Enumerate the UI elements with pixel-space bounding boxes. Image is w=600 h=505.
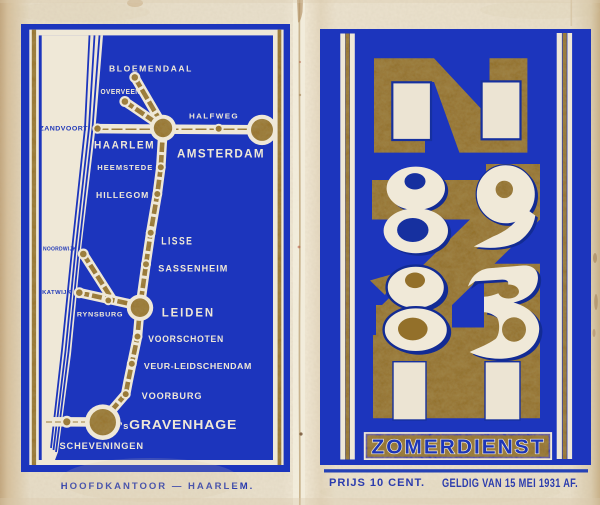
svg-text:ZANDVOORT: ZANDVOORT	[40, 127, 89, 133]
svg-text:ZOMERDIENST: ZOMERDIENST	[372, 436, 546, 458]
svg-text:LEIDEN: LEIDEN	[162, 306, 215, 320]
svg-text:VEUR-LEIDSCHENDAM: VEUR-LEIDSCHENDAM	[144, 362, 252, 371]
svg-text:HALFWEG: HALFWEG	[189, 112, 239, 121]
svg-text:AMSTERDAM: AMSTERDAM	[177, 147, 265, 161]
svg-text:VOORSCHOTEN: VOORSCHOTEN	[148, 334, 224, 344]
svg-text:’sGRAVENHAGE: ’sGRAVENHAGE	[120, 417, 237, 432]
svg-text:PRIJS 10 CENT.: PRIJS 10 CENT.	[329, 477, 425, 489]
svg-text:GELDIG VAN 15 MEI 1931 AF.: GELDIG VAN 15 MEI 1931 AF.	[442, 477, 578, 490]
svg-text:HILLEGOM: HILLEGOM	[96, 190, 149, 200]
svg-text:LISSE: LISSE	[161, 236, 193, 248]
svg-text:SASSENHEIM: SASSENHEIM	[158, 264, 228, 274]
svg-text:HAARLEM: HAARLEM	[94, 140, 155, 152]
svg-text:RYNSBURG: RYNSBURG	[77, 311, 123, 318]
svg-text:HEEMSTEDE: HEEMSTEDE	[97, 163, 153, 172]
svg-text:SCHEVENINGEN: SCHEVENINGEN	[60, 441, 144, 451]
svg-text:VOORBURG: VOORBURG	[142, 391, 203, 401]
svg-text:NOORDWIJK: NOORDWIJK	[43, 247, 77, 253]
svg-text:OVERVEEN: OVERVEEN	[101, 89, 141, 96]
svg-text:BLOEMENDAAL: BLOEMENDAAL	[109, 65, 193, 74]
svg-text:KATWIJK: KATWIJK	[42, 290, 72, 296]
